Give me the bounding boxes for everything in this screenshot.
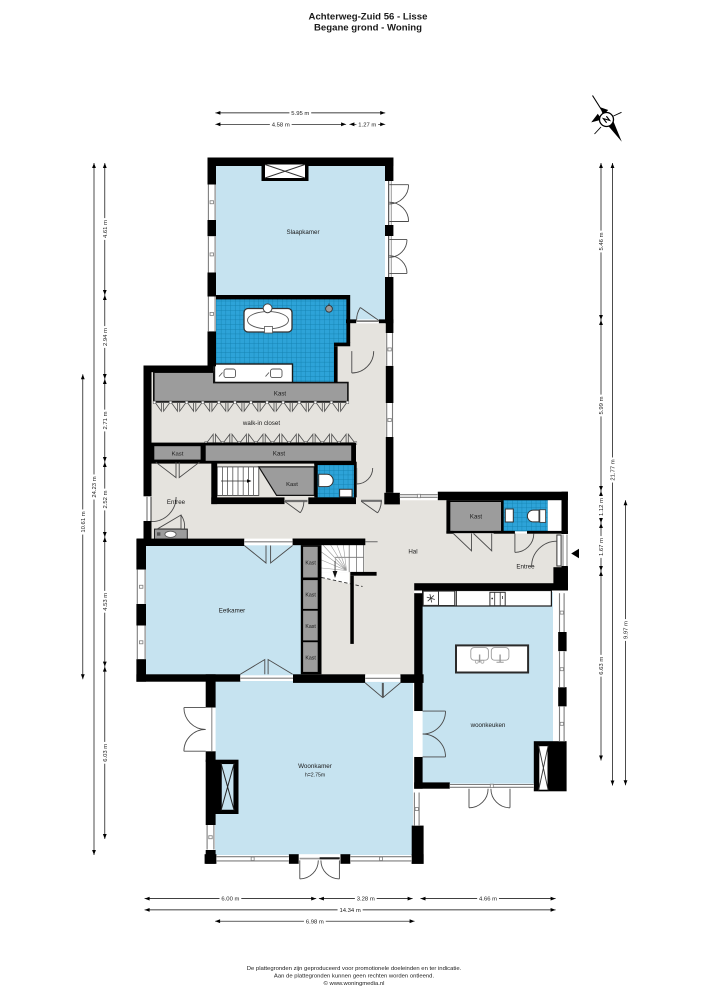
svg-text:woonkeuken: woonkeuken [470,722,506,729]
svg-text:Entree: Entree [167,499,186,506]
svg-text:14.34 m: 14.34 m [339,908,360,914]
svg-text:1.27 m: 1.27 m [358,122,376,128]
svg-text:De plattegronden zijn geproduc: De plattegronden zijn geproduceerd voor … [247,966,462,972]
svg-text:Woonkamer: Woonkamer [298,763,332,770]
svg-text:2.52 m: 2.52 m [103,490,109,508]
svg-text:6.98 m: 6.98 m [306,919,324,925]
svg-text:3.28 m: 3.28 m [357,897,375,903]
svg-text:5.99 m: 5.99 m [599,396,605,414]
svg-text:21.77 m: 21.77 m [611,459,617,480]
svg-text:2.94 m: 2.94 m [103,328,109,346]
svg-text:Slaapkamer: Slaapkamer [286,229,319,236]
svg-text:Hal: Hal [408,549,417,556]
svg-text:Kast: Kast [286,482,298,488]
svg-text:6.03 m: 6.03 m [103,744,109,762]
svg-text:Achterweg-Zuid 56 - Lisse: Achterweg-Zuid 56 - Lisse [309,12,428,23]
svg-text:© www.woningmedia.nl: © www.woningmedia.nl [324,980,385,987]
svg-text:5.46 m: 5.46 m [599,232,605,250]
svg-text:6.63 m: 6.63 m [599,657,605,675]
svg-text:1.67 m: 1.67 m [599,538,605,556]
svg-text:Entree: Entree [516,564,535,571]
svg-text:Kast: Kast [172,452,184,458]
svg-text:24.23 m: 24.23 m [92,476,98,497]
svg-text:Kast: Kast [273,451,286,458]
svg-text:Eetkamer: Eetkamer [219,608,245,615]
svg-text:4.66 m: 4.66 m [479,897,497,903]
svg-text:Kast: Kast [470,514,483,521]
svg-text:Begane grond - Woning: Begane grond - Woning [314,23,422,34]
svg-text:Kast: Kast [305,593,316,599]
svg-text:Kast: Kast [305,655,316,661]
svg-text:Kast: Kast [274,391,287,398]
svg-text:walk-in closet: walk-in closet [242,420,280,427]
svg-text:Kast: Kast [305,560,316,566]
svg-text:4.61 m: 4.61 m [103,220,109,238]
svg-text:2.71 m: 2.71 m [103,411,109,429]
svg-text:1.12 m: 1.12 m [599,498,605,516]
svg-text:10.61 m: 10.61 m [81,511,87,532]
svg-text:Kast: Kast [305,624,316,630]
svg-text:4.58 m: 4.58 m [272,122,290,128]
svg-text:Aan de plattegronden kunnen ge: Aan de plattegronden kunnen geen rechten… [274,974,435,980]
svg-text:5.95 m: 5.95 m [291,111,309,117]
svg-text:h=2.75m: h=2.75m [305,773,325,779]
svg-text:4.53 m: 4.53 m [103,593,109,611]
svg-text:9.97 m: 9.97 m [624,621,630,639]
svg-text:6.00 m: 6.00 m [221,897,239,903]
